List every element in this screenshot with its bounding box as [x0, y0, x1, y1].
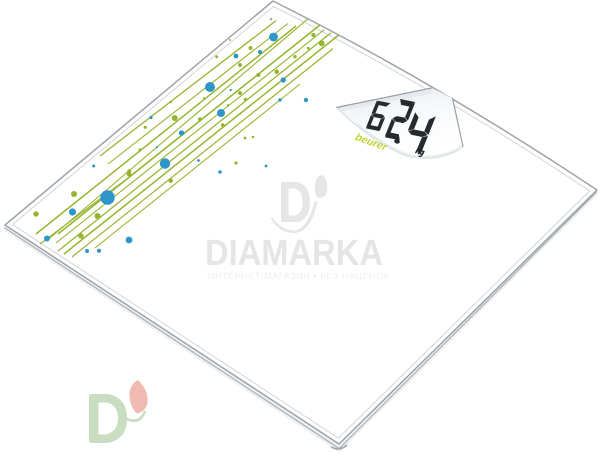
- svg-text:DIAMARKA: DIAMARKA: [205, 232, 383, 273]
- svg-text:ИНТЕРНЕТ-МАГАЗИН • БЕЗ НАЦЕНОК: ИНТЕРНЕТ-МАГАЗИН • БЕЗ НАЦЕНОК: [208, 271, 390, 281]
